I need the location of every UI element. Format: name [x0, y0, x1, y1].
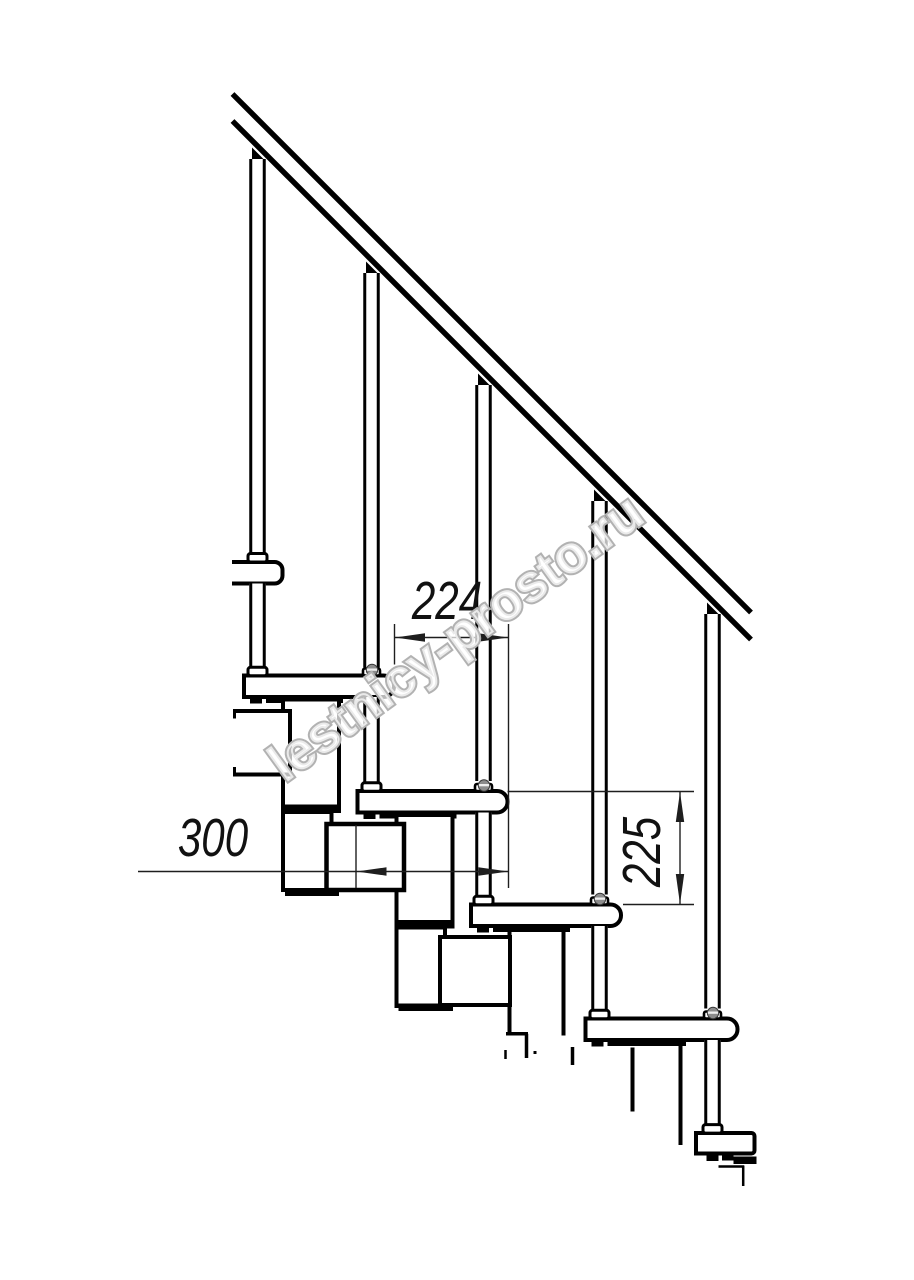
svg-text:225: 225 — [612, 816, 672, 888]
svg-text:300: 300 — [178, 808, 248, 868]
